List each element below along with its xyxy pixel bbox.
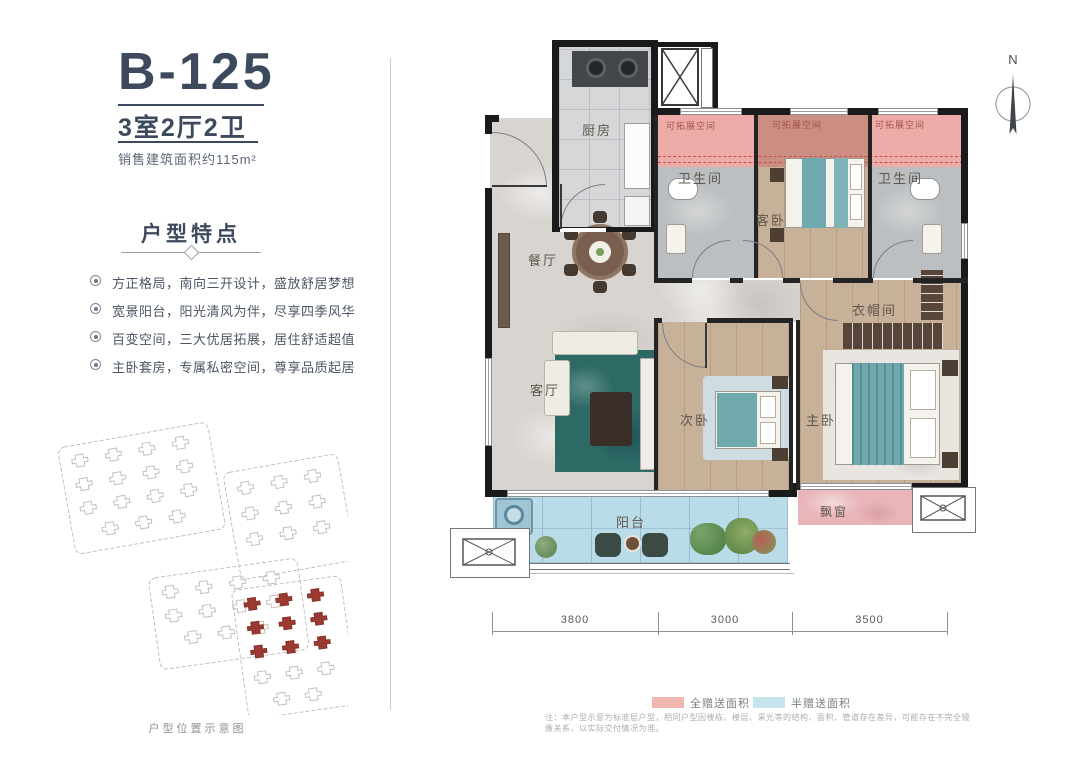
wall <box>868 115 872 278</box>
burner-icon <box>618 58 638 78</box>
stair-shaft <box>701 48 713 108</box>
second-door-leaf <box>705 323 707 368</box>
wall <box>707 318 793 323</box>
wall <box>769 490 797 497</box>
pillow <box>910 418 936 458</box>
wall <box>485 490 507 497</box>
wall <box>485 115 492 134</box>
bullet-icon <box>90 359 101 370</box>
legend-label-full-gift: 全赠送面积 <box>690 695 750 711</box>
feature-item: 宽景阳台，阳光清风为伴，尽享四季风华 <box>90 301 355 320</box>
shoe-cabinet <box>498 233 510 328</box>
room-label-kitchen: 厨房 <box>582 120 612 139</box>
room-label-bay: 飘窗 <box>820 503 848 520</box>
flyer-canvas: B-125 3室2厅2卫 销售建筑面积约115m² 户型特点 方正格局，南向三开… <box>0 0 1080 771</box>
feature-item: 百变空间，三大优居拓展，居住舒适超值 <box>90 329 355 348</box>
wall <box>789 318 793 490</box>
wall <box>783 278 800 283</box>
disclaimer: 注：本户型示意为标准层户型，相同户型因楼栋、楼层、采光等的结构、面积、管道存在差… <box>545 712 973 734</box>
dining-chair <box>564 264 578 276</box>
wall <box>552 40 559 232</box>
pillow <box>760 422 776 444</box>
plant <box>535 536 557 558</box>
wall <box>552 40 658 47</box>
plant <box>752 530 776 554</box>
wall <box>796 320 800 490</box>
wardrobe <box>843 323 943 349</box>
nightstand <box>772 448 788 461</box>
corridor-floor <box>658 280 800 322</box>
wall <box>833 278 873 283</box>
room-label-dining: 餐厅 <box>528 250 558 269</box>
elevator-shaft <box>661 48 699 106</box>
bath-sink <box>666 224 686 254</box>
legend-label-half-gift: 半赠送面积 <box>791 695 851 711</box>
expand-label: 可拓展空间 <box>641 119 741 132</box>
svg-text:N: N <box>1008 52 1017 67</box>
balcony-chair <box>595 533 621 557</box>
room-label-guest: 客卧 <box>756 210 786 229</box>
legend-swatch-half-gift <box>753 697 785 708</box>
kitchen-cabinet <box>624 196 650 226</box>
room-label-living: 客厅 <box>530 380 560 399</box>
room-label-bath-right: 卫生间 <box>878 168 923 187</box>
room-label-cloak: 衣帽间 <box>852 300 897 319</box>
bay-window-glass <box>800 483 912 490</box>
pillow <box>850 194 862 220</box>
balcony-rail <box>487 563 790 570</box>
dim-value: 3500 <box>792 614 947 626</box>
area-note: 销售建筑面积约115m² <box>118 149 257 168</box>
dim-line <box>492 631 948 632</box>
nightstand <box>770 168 784 182</box>
expand-label: 可拓展空间 <box>850 118 950 131</box>
feature-item: 方正格局，南向三开设计，盛放舒居梦想 <box>90 273 355 292</box>
living-window <box>485 358 492 446</box>
site-plan-sketch <box>48 420 348 715</box>
wall <box>913 278 968 283</box>
room-label-master: 主卧 <box>806 410 836 429</box>
wall <box>654 278 692 283</box>
bath-sink <box>922 224 942 254</box>
bullet-icon <box>90 275 101 286</box>
dim-value: 3000 <box>658 614 792 626</box>
bullet-icon <box>90 303 101 314</box>
pillow <box>850 164 862 190</box>
guest-bed-blanket <box>834 158 848 228</box>
sofa <box>552 331 638 355</box>
layout-subtitle: 3室2厅2卫 <box>118 108 247 144</box>
burner-icon <box>586 58 606 78</box>
north-arrow: N <box>988 48 1038 140</box>
title-underline <box>118 104 264 106</box>
second-bed-blanket <box>717 393 757 447</box>
nightstand <box>772 376 788 389</box>
plant-centerpiece <box>596 248 604 256</box>
site-plan-caption: 户型位置示意图 <box>50 720 345 736</box>
nightstand <box>942 452 958 468</box>
wall <box>730 278 743 283</box>
wall <box>654 115 658 278</box>
guest-bed-blanket <box>802 158 826 228</box>
window <box>680 108 742 115</box>
master-bed-blanket <box>852 363 904 465</box>
balcony-table <box>624 535 641 552</box>
feature-item: 主卧套房，专属私密空间，尊享品质起居 <box>90 357 355 376</box>
bullet-icon <box>90 331 101 342</box>
fridge <box>624 123 650 189</box>
wall <box>485 188 492 358</box>
room-label-balcony: 阳台 <box>616 512 646 531</box>
balcony-slider-window <box>507 490 769 497</box>
wall <box>961 108 968 490</box>
nightstand <box>942 360 958 376</box>
gift-dash-line <box>658 156 968 157</box>
legend-swatch-full-gift <box>652 697 684 708</box>
pillow <box>760 396 776 418</box>
entry-door-leaf <box>492 185 547 187</box>
pillow <box>910 370 936 410</box>
expand-label: 可拓展空间 <box>747 118 847 131</box>
dining-chair <box>593 281 607 293</box>
kitchen-door-leaf <box>560 184 562 229</box>
unit-code-title: B-125 <box>118 42 275 102</box>
wall <box>654 318 658 490</box>
room-label-bath-left: 卫生间 <box>678 168 723 187</box>
window <box>961 223 968 259</box>
bay-window-floor <box>798 487 912 525</box>
dining-chair <box>622 264 636 276</box>
window <box>878 108 938 115</box>
window <box>790 108 848 115</box>
room-label-second: 次卧 <box>680 410 710 429</box>
dim-value: 3800 <box>492 614 658 626</box>
nightstand <box>770 228 784 242</box>
coffee-table <box>590 392 632 446</box>
ac-unit-icon <box>920 495 966 521</box>
vertical-divider <box>390 58 391 710</box>
washer-drum-icon <box>504 505 524 525</box>
plant <box>690 523 726 555</box>
ac-unit-icon <box>462 538 516 566</box>
floor-plan: 厨房 餐厅 客厅 卫生间 卫生间 客卧 次卧 主卧 衣帽间 阳台 飘窗 可拓展空… <box>440 28 1050 653</box>
subtitle-underline <box>118 141 258 143</box>
balcony-chair <box>642 533 668 557</box>
wall <box>654 42 716 47</box>
